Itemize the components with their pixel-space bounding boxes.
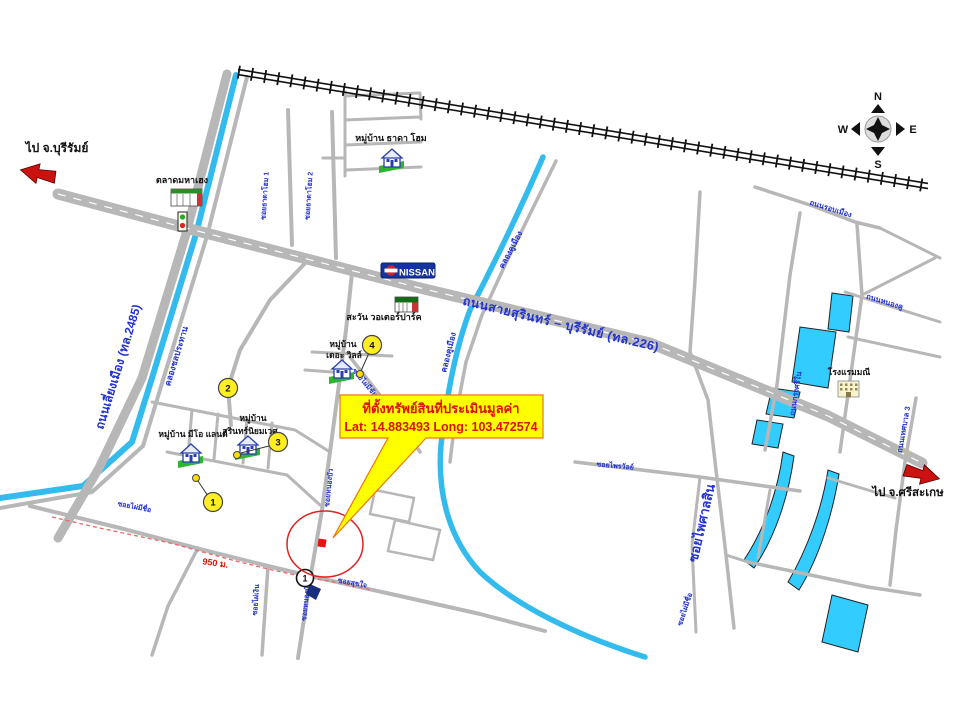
hotel-icon: [838, 381, 859, 397]
marker-4-number: 4: [369, 340, 375, 351]
market-label: ตลาดมหาเฮง: [156, 175, 208, 185]
soi-phaisansin-label: ซอยไพศาลสิน: [684, 482, 718, 563]
waterpark-label: สะวัน วอเตอร์ปาร์ค: [346, 311, 421, 322]
soi-thada2-label: ซอยธาดาโฮม 2: [302, 171, 314, 220]
compass-east-label: E: [909, 124, 916, 136]
marker-2: 2: [219, 379, 238, 398]
callout-coordinates: Lat: 14.883493 Long: 103.472574: [344, 420, 537, 434]
village-surin-label-1: หมู่บ้าน: [239, 413, 266, 424]
soi-thada1-label: ซอยธาดาโฮม 1: [258, 171, 270, 220]
village-thada-label: หมู่บ้าน ธาดา โฮม: [355, 132, 427, 144]
marker-4: 4: [363, 336, 382, 355]
traffic-light-icon: [178, 212, 187, 231]
map-canvas: 950 ม. ถนนสายสุรินทร์ – บุรีรัมย์ (ทล.22…: [0, 0, 960, 720]
block-outline: [388, 520, 440, 560]
thanon-nongkhu-label: ถนนหนองคู: [865, 292, 904, 313]
railroad-track: [238, 69, 928, 188]
marker-2-number: 2: [225, 383, 230, 394]
marker-3-number: 3: [275, 437, 280, 448]
compass-south-label: S: [874, 159, 881, 171]
village-ville-label-1: หมู่บ้าน: [329, 339, 356, 350]
destination-left-label: ไป จ.บุรีรัมย์: [24, 140, 89, 156]
destination-right-label: ไป จ.ศรีสะเกษ: [870, 485, 944, 499]
nissan-sign: NISSAN: [381, 263, 435, 279]
marker-1: 1: [204, 493, 223, 512]
callout-title: ที่ตั้งทรัพย์สินที่ประเมินมูลค่า: [362, 398, 519, 417]
market-icon: [171, 189, 202, 206]
compass-north-label: N: [874, 91, 882, 103]
soi-phairawan-label: ซอยไพรวัลย์: [596, 459, 634, 471]
junction-marker-number: 1: [302, 573, 307, 583]
ponds: [744, 293, 868, 652]
soi-phaimichai-label: ซอยไผ่มีชัย: [350, 366, 379, 398]
nissan-label: NISSAN: [399, 268, 435, 279]
soi-phaingoen-label: ซอยไผ่เงิน: [250, 584, 261, 616]
waterpark-icon: [395, 297, 418, 312]
compass-rose-icon: N S W E: [838, 91, 917, 171]
village-meo-label: หมู่บ้าน มีโอ แลนด์: [158, 429, 228, 440]
soi-phaimichue-label-west: ซอยไผ่มีชื่อ: [117, 498, 153, 514]
marker-1-number: 1: [210, 497, 216, 508]
house-icon-thada: [379, 149, 404, 173]
property-location-map: 950 ม. ถนนสายสุรินทร์ – บุรีรัมย์ (ทล.22…: [0, 0, 960, 720]
village-surin-label-2: สุรินทร์นิยมเวศ: [222, 426, 278, 437]
bypass-road-label: ถนนเลี่ยงเมือง (ทล.2485): [91, 302, 144, 431]
soi-phaimichue-label-east: ซอยไผ่มีชื่อ: [674, 591, 694, 627]
property-marker: [317, 538, 326, 547]
west-direction-arrow-icon: [18, 160, 57, 187]
compass-west-label: W: [838, 124, 849, 136]
soi-sukjai-label: ซอยสุขใจ: [337, 575, 368, 589]
block-outline: [370, 490, 414, 522]
highway-label: ถนนสายสุรินทร์ – บุรีรัมย์ (ทล.226): [461, 293, 661, 356]
hotel-label: โรงแรมมณี: [827, 367, 871, 377]
village-ville-label-2: เดอะ วิลล์: [326, 350, 362, 360]
marker-3: 3: [269, 433, 288, 452]
